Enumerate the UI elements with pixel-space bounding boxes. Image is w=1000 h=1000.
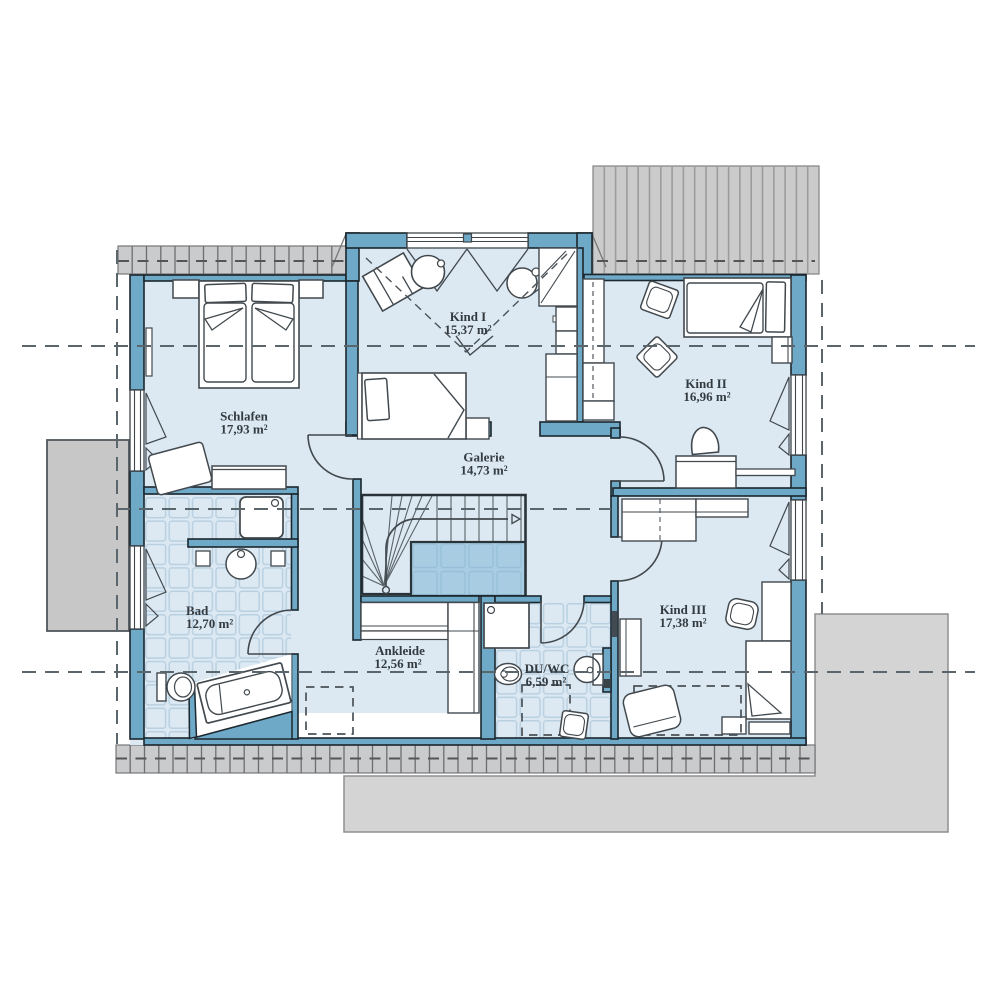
svg-text:12,56 m²: 12,56 m² [374, 656, 421, 671]
svg-text:17,93 m²: 17,93 m² [220, 422, 267, 437]
svg-text:17,38 m²: 17,38 m² [659, 615, 706, 630]
svg-text:12,70 m²: 12,70 m² [186, 616, 233, 631]
svg-text:16,96 m²: 16,96 m² [683, 389, 730, 404]
svg-text:15,37 m²: 15,37 m² [444, 322, 491, 337]
svg-text:6,59 m²: 6,59 m² [526, 674, 567, 689]
svg-text:14,73 m²: 14,73 m² [460, 463, 507, 478]
